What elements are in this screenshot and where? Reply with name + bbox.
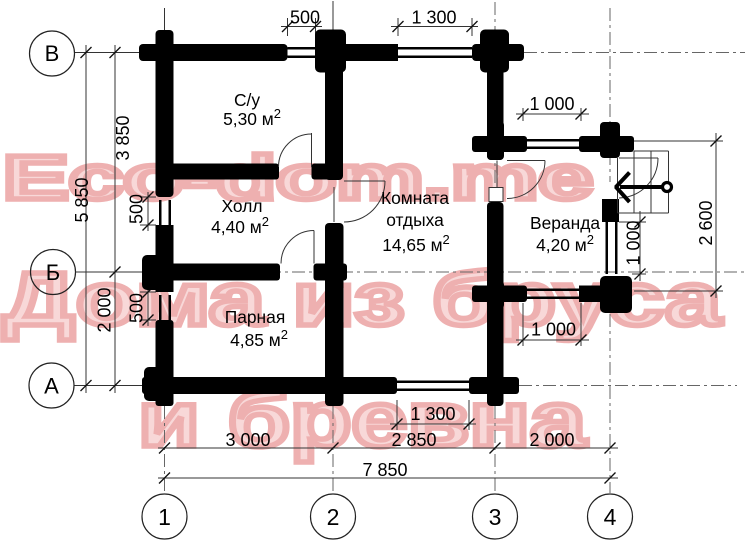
svg-text:7 850: 7 850 — [362, 460, 407, 480]
svg-text:1 000: 1 000 — [531, 320, 576, 340]
svg-text:1: 1 — [158, 504, 171, 530]
svg-text:2 000: 2 000 — [95, 287, 115, 332]
svg-text:500: 500 — [127, 293, 147, 323]
svg-text:500: 500 — [127, 194, 147, 224]
svg-text:500: 500 — [290, 8, 320, 28]
svg-text:Веранда: Веранда — [530, 213, 600, 233]
svg-text:В: В — [45, 41, 60, 66]
svg-text:отдыха: отдыха — [386, 210, 444, 230]
svg-text:1 000: 1 000 — [624, 220, 644, 265]
svg-text:3 000: 3 000 — [225, 430, 270, 450]
svg-text:4: 4 — [604, 504, 617, 530]
svg-text:3 850: 3 850 — [113, 115, 133, 160]
svg-text:3: 3 — [489, 504, 502, 530]
svg-text:1 300: 1 300 — [410, 404, 455, 424]
svg-text:Парная: Парная — [225, 307, 286, 327]
svg-text:4,40 м2: 4,40 м2 — [211, 214, 269, 237]
svg-text:2 000: 2 000 — [529, 430, 574, 450]
svg-text:С/у: С/у — [234, 90, 260, 110]
svg-text:Холл: Холл — [222, 196, 263, 216]
svg-text:А: А — [44, 374, 59, 399]
svg-text:5 850: 5 850 — [72, 177, 92, 222]
svg-text:Комната: Комната — [381, 188, 449, 208]
svg-text:4,85 м2: 4,85 м2 — [230, 327, 288, 350]
svg-text:4,20 м2: 4,20 м2 — [536, 232, 594, 255]
svg-text:1 300: 1 300 — [411, 8, 456, 28]
svg-text:2 600: 2 600 — [696, 200, 716, 245]
svg-text:Б: Б — [46, 260, 60, 285]
svg-text:14,65 м2: 14,65 м2 — [382, 232, 450, 255]
svg-text:2 850: 2 850 — [391, 430, 436, 450]
svg-text:2: 2 — [327, 504, 340, 530]
svg-text:5,30 м2: 5,30 м2 — [223, 106, 281, 129]
svg-text:1 000: 1 000 — [529, 94, 574, 114]
